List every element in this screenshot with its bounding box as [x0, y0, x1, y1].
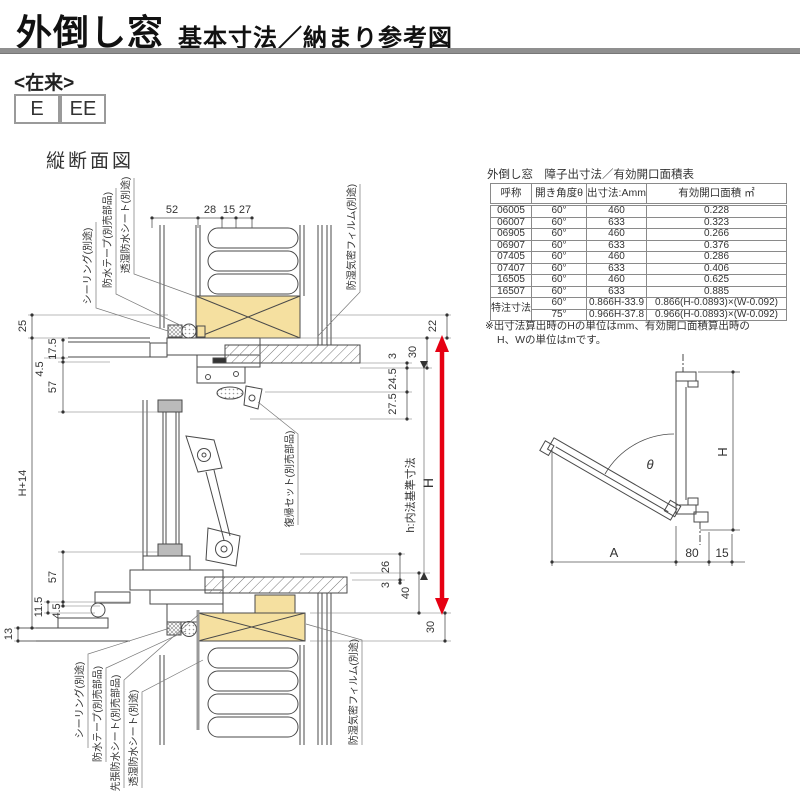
sash-glass	[143, 400, 182, 556]
cell: 0.406	[647, 263, 787, 275]
cell: 60°	[532, 252, 587, 264]
table-row: 0600760°6330.323	[491, 217, 787, 229]
dim-h14: H+14	[17, 470, 29, 497]
cell: 07405	[491, 252, 532, 264]
cell: 0.228	[647, 205, 787, 218]
section-view-label: 縦断面図	[46, 146, 134, 173]
cell: 0.885	[647, 286, 787, 298]
series-label: <在来>	[14, 68, 74, 95]
dim-40: 40	[400, 587, 412, 599]
cell: 60°	[532, 240, 587, 252]
cell: 460	[587, 205, 647, 218]
table-row: 0740560°4600.286	[491, 252, 787, 264]
angle-diagram: θ H A 80 15	[540, 354, 745, 566]
col-name: 呼称	[491, 184, 532, 205]
callout-film-bottom: 防湿気密フィルム(別途)	[347, 639, 360, 745]
dim-27: 27	[239, 204, 251, 216]
table-row: 1650760°6330.885	[491, 286, 787, 298]
callout-sealing-bottom: シーリング(別途)	[73, 662, 86, 739]
dim-4-5a: 4.5	[34, 361, 46, 376]
header-rule	[0, 48, 800, 54]
cell: 0.323	[647, 217, 787, 229]
dim-30b: 30	[425, 621, 437, 633]
cell: 460	[587, 252, 647, 264]
callout-sheet-top: 透湿防水シート(別途)	[119, 177, 132, 274]
cell: 60°	[532, 229, 587, 241]
cell: 60°	[532, 275, 587, 287]
cell: 0.866H-33.9	[587, 298, 647, 310]
diagram-80: 80	[685, 546, 699, 560]
dim-24-5: 24.5	[387, 368, 399, 389]
cell: 0.266	[647, 229, 787, 241]
cell: 16505	[491, 275, 532, 287]
table-row: 0740760°6330.406	[491, 263, 787, 275]
cell: 60°	[532, 286, 587, 298]
table-row: 0690760°6330.376	[491, 240, 787, 252]
dim-57a: 57	[47, 381, 59, 393]
dim-3a: 3	[387, 353, 399, 359]
cell: 60°	[532, 205, 587, 218]
callout-presheet-bottom: 先張防水シート(別売部品)	[109, 675, 122, 792]
dim-15: 15	[223, 204, 235, 216]
table-row-custom: 特注寸法 60° 0.866H-33.9 0.866(H-0.0893)×(W-…	[491, 298, 787, 310]
h-arrow	[435, 335, 449, 615]
dim-13: 13	[3, 628, 15, 640]
dim-3b: 3	[380, 582, 392, 588]
diagram-theta: θ	[646, 457, 653, 472]
wood-lintel	[196, 296, 300, 338]
callout-sealing-top: シーリング(別途)	[81, 228, 94, 305]
cell: 0.286	[647, 252, 787, 264]
dim-texts: 52 28 15 27 25 17.5 4.5 57 H+14 57 11.5 …	[3, 204, 439, 640]
callout-tape-bottom: 防水テープ(別売部品)	[91, 666, 104, 762]
table-row: 0690560°4600.266	[491, 229, 787, 241]
diagram-a: A	[610, 545, 619, 560]
spec-table-title: 外倒し窓 障子出寸法／有効開口面積表	[487, 166, 694, 182]
callout-sheet-bottom: 透湿防水シート(別途)	[127, 690, 140, 787]
cell: 0.625	[647, 275, 787, 287]
dim-26: 26	[380, 561, 392, 573]
code-box-ee: EE	[60, 94, 106, 124]
callout-return-set: 復帰セット(別売部品)	[283, 431, 296, 528]
drawing-layer: 52 28 15 27 25 17.5 4.5 57 H+14 57 11.5 …	[0, 0, 800, 800]
cell: 06007	[491, 217, 532, 229]
cell: 633	[587, 217, 647, 229]
dim-17-5: 17.5	[47, 338, 59, 359]
cell: 60°	[532, 298, 587, 310]
diagram-15: 15	[715, 546, 729, 560]
spec-note-line1: ※出寸法算出時のHの単位はmm、有効開口面積算出時の	[485, 318, 750, 333]
wood-sill	[198, 613, 305, 641]
cell: 60°	[532, 263, 587, 275]
spec-note-line2: H、Wの単位はmです。	[497, 332, 606, 347]
cell: 60°	[532, 217, 587, 229]
stay-arm	[186, 436, 240, 566]
code-box-e: E	[14, 94, 60, 124]
cell: 0.866(H-0.0893)×(W-0.092)	[647, 298, 787, 310]
cell: 06907	[491, 240, 532, 252]
spec-table: 呼称 開き角度θ 出寸法:Amm 有効開口面積 ㎡ 0600560°4600.2…	[490, 183, 787, 321]
col-angle: 開き角度θ	[532, 184, 587, 205]
cell: 06905	[491, 229, 532, 241]
cell: 633	[587, 240, 647, 252]
h-basis-label: h:内法基準寸法	[403, 457, 417, 532]
col-projection: 出寸法:Amm	[587, 184, 647, 205]
diagram-h: H	[715, 447, 730, 456]
callout-film-top: 防湿気密フィルム(別途)	[345, 184, 358, 290]
col-area: 有効開口面積 ㎡	[647, 184, 787, 205]
dim-22: 22	[427, 320, 439, 332]
cell: 460	[587, 275, 647, 287]
spec-header-row: 呼称 開き角度θ 出寸法:Amm 有効開口面積 ㎡	[491, 184, 787, 205]
cell: 460	[587, 229, 647, 241]
cell: 0.376	[647, 240, 787, 252]
dim-57b: 57	[47, 571, 59, 583]
dim-4-5b: 4.5	[51, 603, 63, 618]
dim-30a: 30	[407, 346, 419, 358]
dim-28: 28	[204, 204, 216, 216]
dim-11-5: 11.5	[33, 597, 45, 618]
h-arrow-label: H	[420, 478, 436, 488]
dim-27-5: 27.5	[387, 393, 399, 414]
table-row: 0600560°4600.228	[491, 205, 787, 218]
cell: 06005	[491, 205, 532, 218]
dim-52: 52	[166, 204, 178, 216]
table-row: 1650560°4600.625	[491, 275, 787, 287]
cell: 07407	[491, 263, 532, 275]
cell: 16507	[491, 286, 532, 298]
dim-25: 25	[17, 320, 29, 332]
cell: 633	[587, 286, 647, 298]
callout-tape-top: 防水テープ(別売部品)	[101, 192, 114, 288]
cell: 633	[587, 263, 647, 275]
